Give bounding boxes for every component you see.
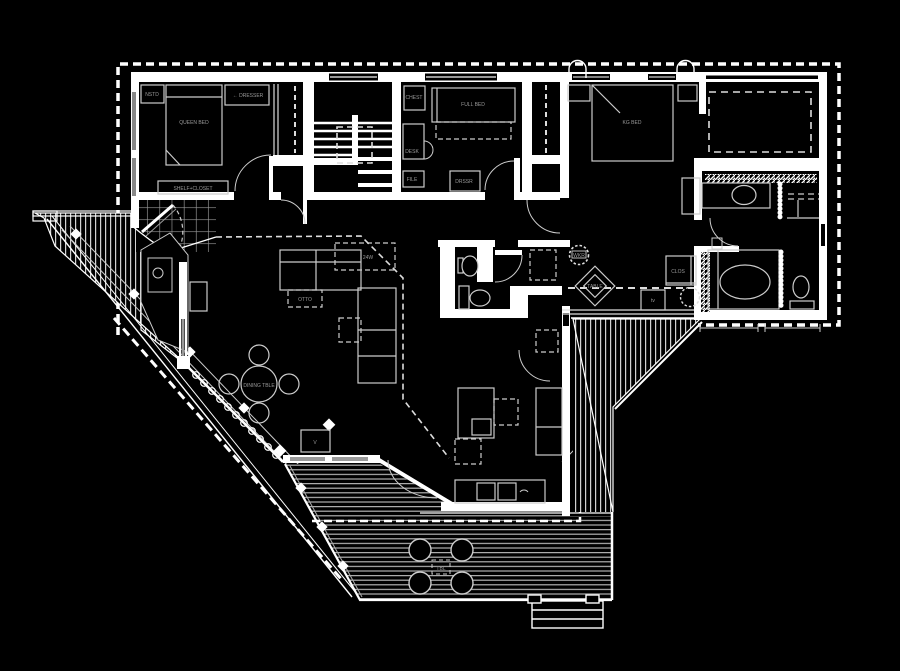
svg-text:CHEST: CHEST [406, 95, 423, 101]
svg-text:TBL: TBL [436, 566, 445, 572]
svg-text:FULL BED: FULL BED [461, 102, 485, 108]
svg-text:CLOS: CLOS [671, 269, 685, 275]
svg-text:tv: tv [651, 298, 655, 304]
svg-text:DRSSR: DRSSR [455, 179, 473, 185]
svg-text:24W: 24W [363, 255, 374, 261]
svg-text:SHELF+CLOSET: SHELF+CLOSET [173, 186, 212, 192]
svg-text:TABLE: TABLE [587, 284, 603, 290]
svg-text:← DRESSER: ← DRESSER [233, 93, 264, 99]
svg-text:NSTD: NSTD [145, 92, 159, 98]
svg-text:QUEEN BED: QUEEN BED [179, 120, 209, 126]
svg-text:KG BED: KG BED [623, 120, 642, 126]
svg-text:FILE: FILE [407, 177, 418, 183]
svg-text:DINING TBLE: DINING TBLE [243, 383, 275, 389]
svg-text:DESK: DESK [405, 149, 419, 155]
svg-text:WKR: WKR [573, 253, 585, 259]
svg-text:OTTO: OTTO [298, 297, 312, 303]
